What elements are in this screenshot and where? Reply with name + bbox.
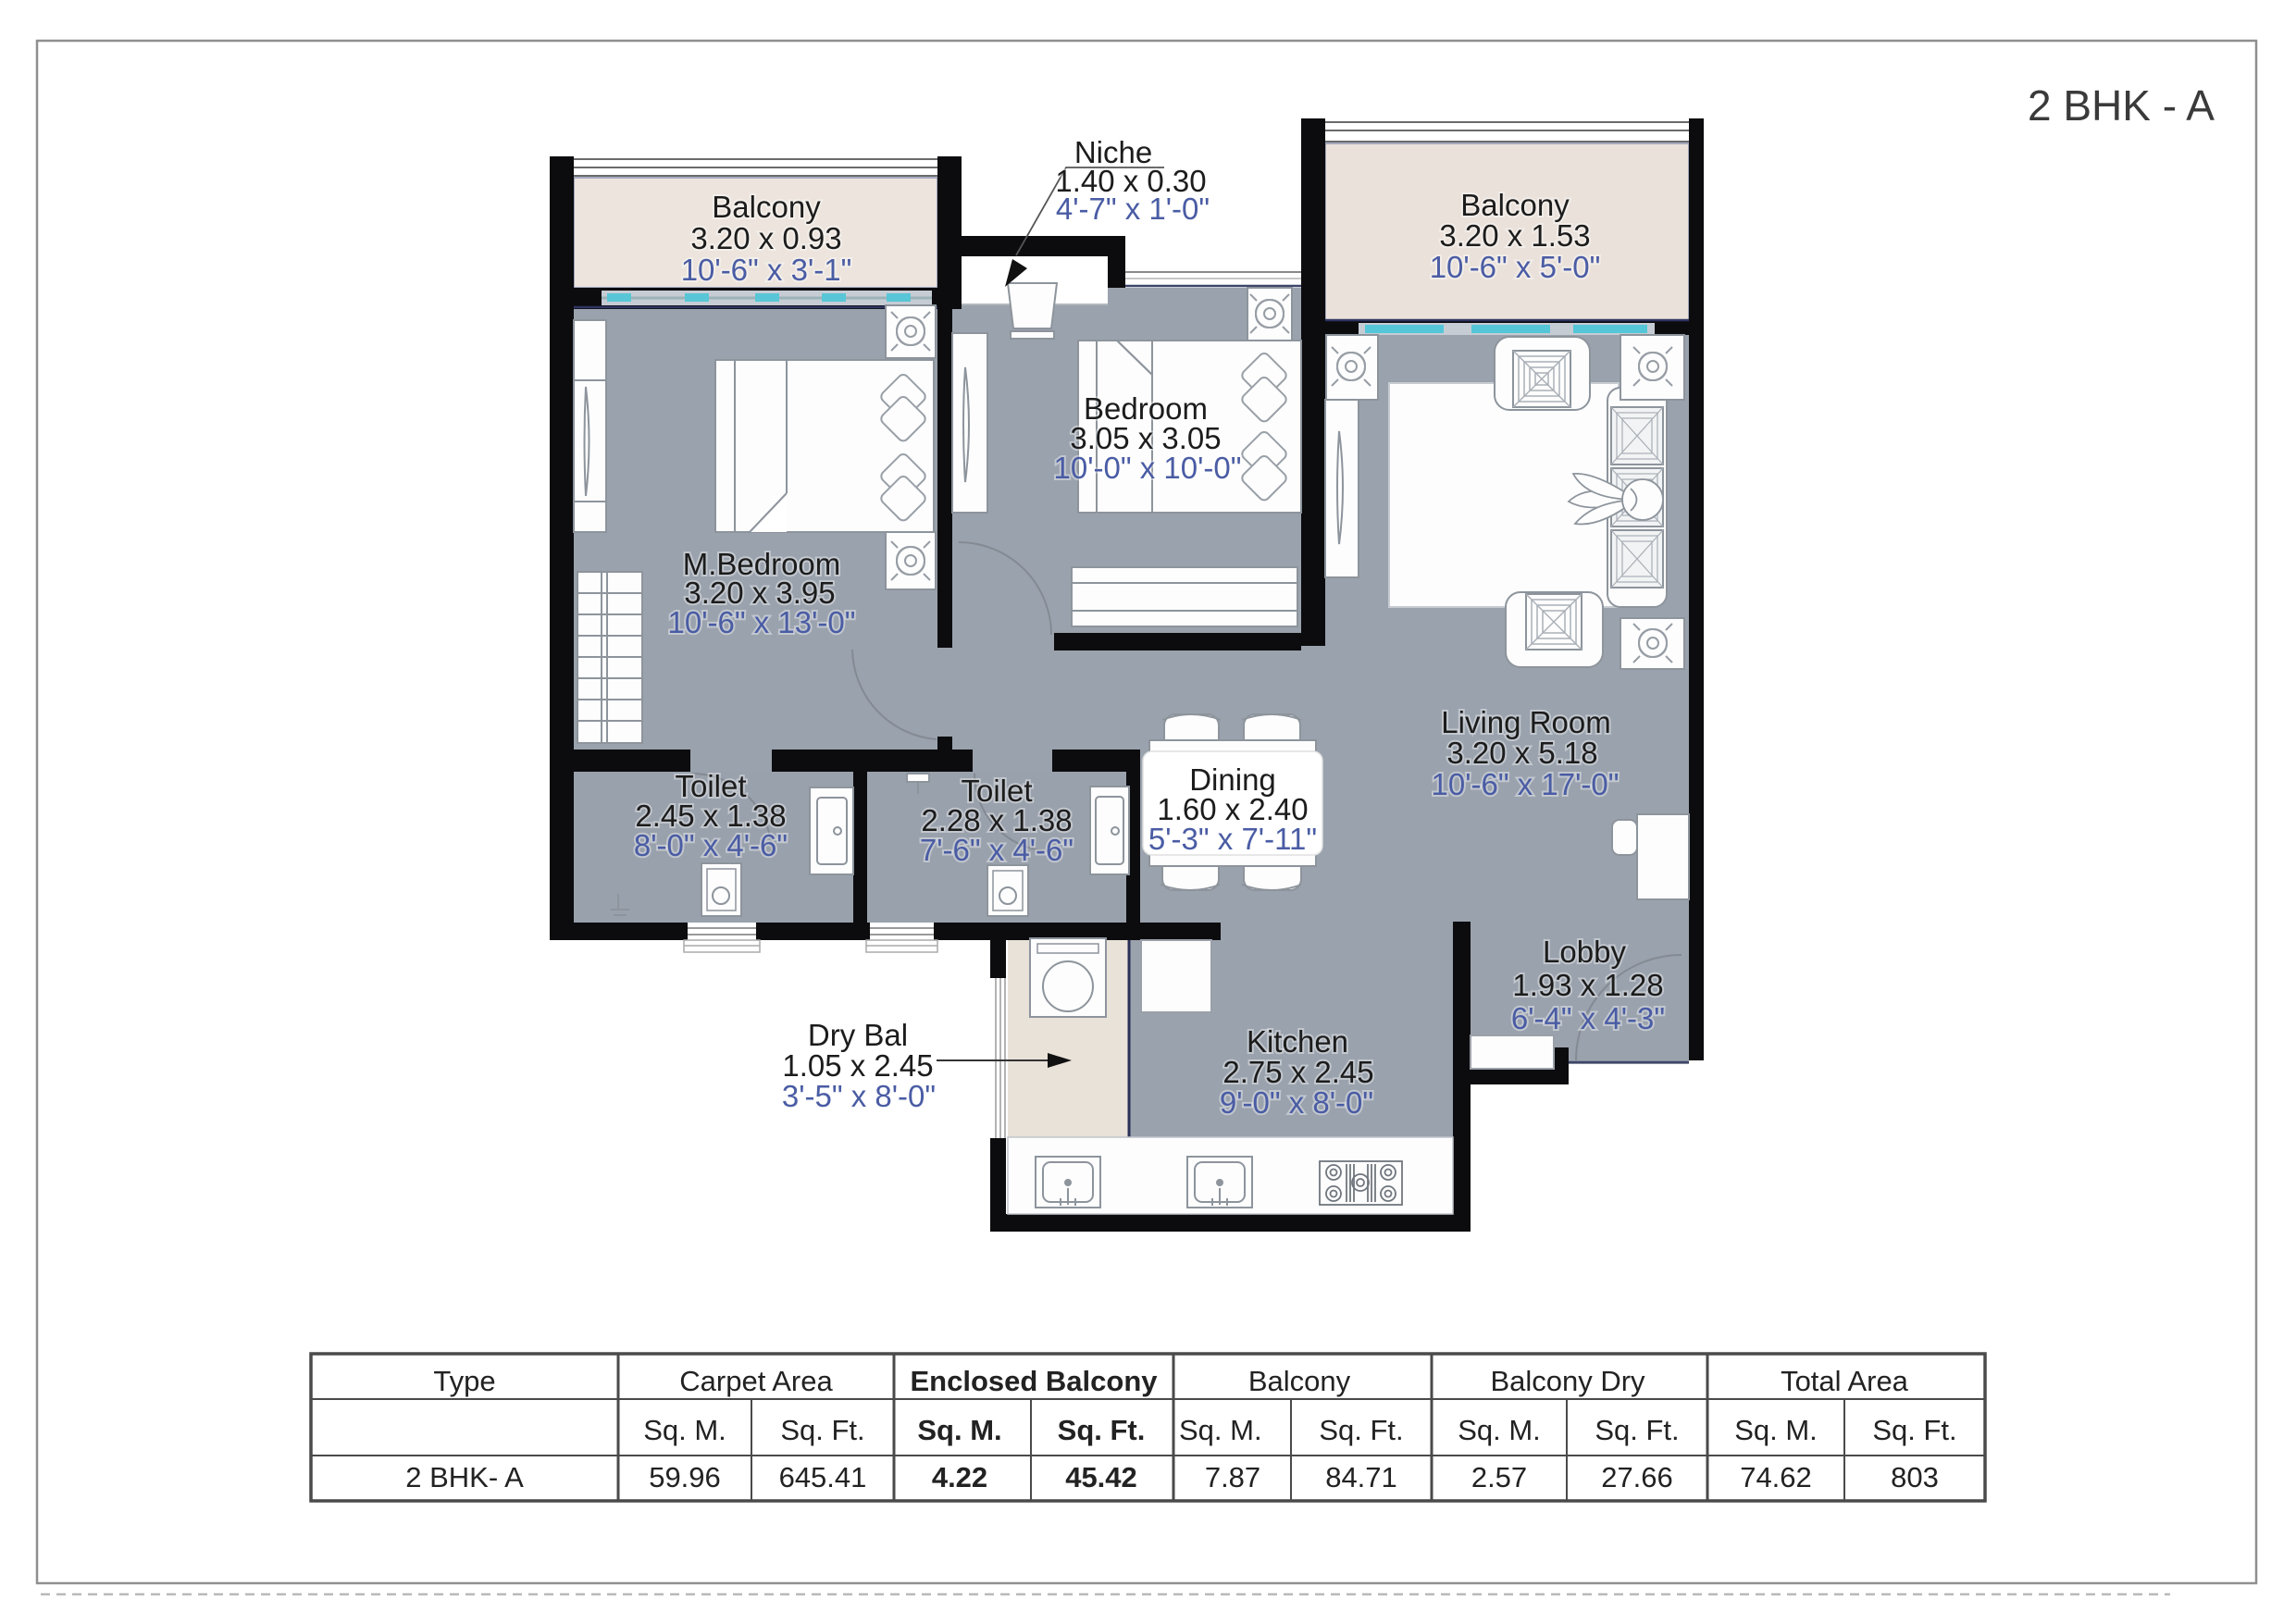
- svg-text:2 BHK - A: 2 BHK - A: [2028, 81, 2215, 130]
- svg-text:645.41: 645.41: [779, 1461, 867, 1493]
- svg-text:Balcony: Balcony: [712, 190, 821, 224]
- svg-text:Sq. Ft.: Sq. Ft.: [1595, 1414, 1679, 1446]
- svg-text:5'-3" x 7'-11": 5'-3" x 7'-11": [1148, 822, 1317, 856]
- svg-text:10'-0" x 10'-0": 10'-0" x 10'-0": [1054, 451, 1242, 485]
- svg-text:Kitchen: Kitchen: [1247, 1024, 1348, 1059]
- svg-text:7.87: 7.87: [1205, 1461, 1260, 1493]
- svg-text:803: 803: [1891, 1461, 1939, 1493]
- svg-text:Balcony: Balcony: [1460, 188, 1570, 222]
- svg-text:Sq. M.: Sq. M.: [1458, 1414, 1541, 1446]
- svg-text:2 BHK- A: 2 BHK- A: [405, 1461, 524, 1493]
- svg-text:Living Room: Living Room: [1441, 705, 1610, 739]
- svg-text:Sq. Ft.: Sq. Ft.: [780, 1414, 864, 1446]
- svg-text:9'-0" x 8'-0": 9'-0" x 8'-0": [1220, 1085, 1373, 1120]
- svg-text:Dry Bal: Dry Bal: [808, 1018, 908, 1052]
- svg-text:Sq. Ft.: Sq. Ft.: [1058, 1414, 1146, 1446]
- svg-text:Carpet Area: Carpet Area: [679, 1365, 833, 1397]
- svg-text:Balcony: Balcony: [1248, 1365, 1351, 1397]
- svg-text:Lobby: Lobby: [1543, 935, 1626, 969]
- svg-text:10'-6" x 5'-0": 10'-6" x 5'-0": [1430, 250, 1601, 284]
- svg-text:10'-6" x 13'-0": 10'-6" x 13'-0": [668, 605, 856, 639]
- svg-text:Total Area: Total Area: [1781, 1365, 1909, 1397]
- svg-text:3.20 x 0.93: 3.20 x 0.93: [690, 221, 841, 255]
- svg-text:27.66: 27.66: [1601, 1461, 1673, 1493]
- svg-text:Sq. M.: Sq. M.: [917, 1414, 1001, 1446]
- svg-text:8'-0" x 4'-6": 8'-0" x 4'-6": [634, 828, 788, 862]
- svg-text:84.71: 84.71: [1325, 1461, 1397, 1493]
- svg-text:45.42: 45.42: [1065, 1461, 1137, 1493]
- svg-text:74.62: 74.62: [1740, 1461, 1812, 1493]
- svg-text:2.75 x 2.45: 2.75 x 2.45: [1222, 1055, 1373, 1089]
- svg-text:59.96: 59.96: [649, 1461, 721, 1493]
- svg-text:10'-6" x 17'-0": 10'-6" x 17'-0": [1432, 767, 1620, 801]
- svg-text:3.20 x 5.18: 3.20 x 5.18: [1446, 736, 1597, 770]
- svg-text:1.93 x 1.28: 1.93 x 1.28: [1512, 968, 1663, 1002]
- svg-text:7'-6" x 4'-6": 7'-6" x 4'-6": [920, 833, 1074, 867]
- svg-text:1.05 x 2.45: 1.05 x 2.45: [782, 1048, 933, 1083]
- svg-text:Sq. M.: Sq. M.: [1179, 1414, 1262, 1446]
- svg-text:Sq. M.: Sq. M.: [643, 1414, 726, 1446]
- svg-text:10'-6" x 3'-1": 10'-6" x 3'-1": [681, 253, 852, 287]
- svg-text:Sq. Ft.: Sq. Ft.: [1872, 1414, 1956, 1446]
- svg-text:2.57: 2.57: [1471, 1461, 1527, 1493]
- svg-text:Enclosed Balcony: Enclosed Balcony: [910, 1365, 1158, 1397]
- svg-text:4'-7" x 1'-0": 4'-7" x 1'-0": [1056, 192, 1210, 226]
- svg-text:3'-5" x 8'-0": 3'-5" x 8'-0": [782, 1079, 936, 1113]
- svg-text:4.22: 4.22: [932, 1461, 987, 1493]
- svg-text:Sq. M.: Sq. M.: [1734, 1414, 1818, 1446]
- svg-text:6'-4" x 4'-3": 6'-4" x 4'-3": [1511, 1001, 1665, 1035]
- svg-text:Balcony Dry: Balcony Dry: [1490, 1365, 1645, 1397]
- svg-text:Type: Type: [433, 1365, 495, 1397]
- svg-text:3.20 x 1.53: 3.20 x 1.53: [1439, 218, 1590, 253]
- svg-text:Sq. Ft.: Sq. Ft.: [1319, 1414, 1403, 1446]
